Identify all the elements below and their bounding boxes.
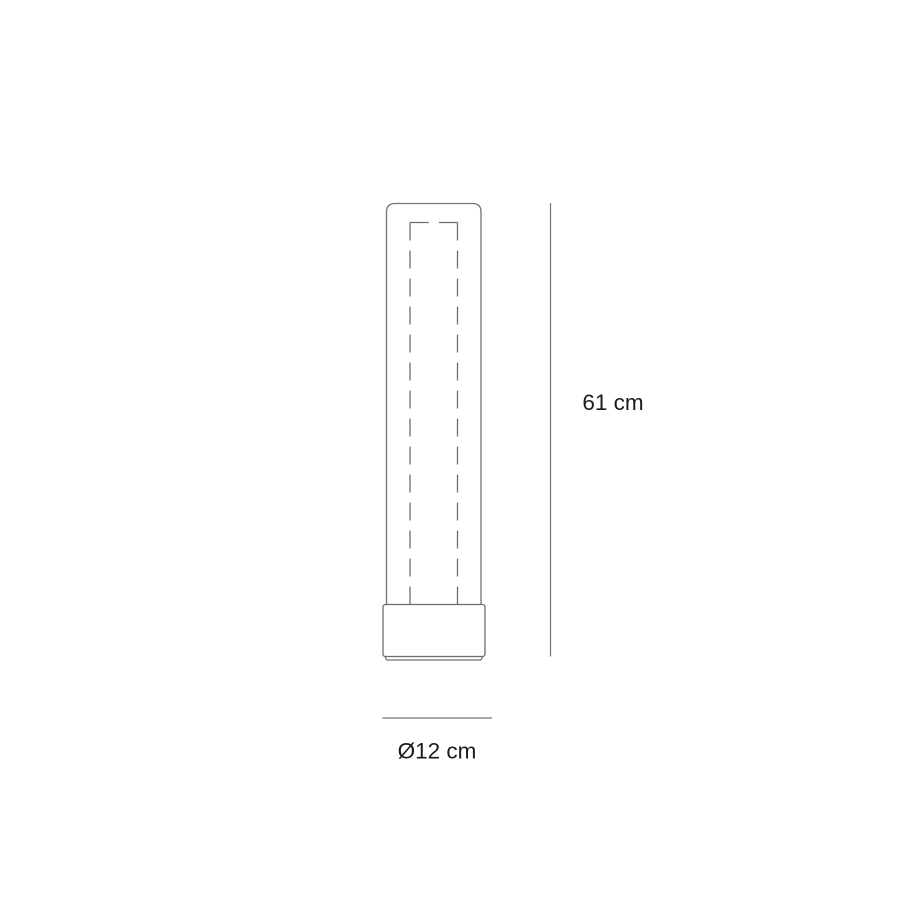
svg-text:61 cm: 61 cm — [582, 390, 643, 415]
svg-text:Ø12 cm: Ø12 cm — [398, 739, 477, 764]
